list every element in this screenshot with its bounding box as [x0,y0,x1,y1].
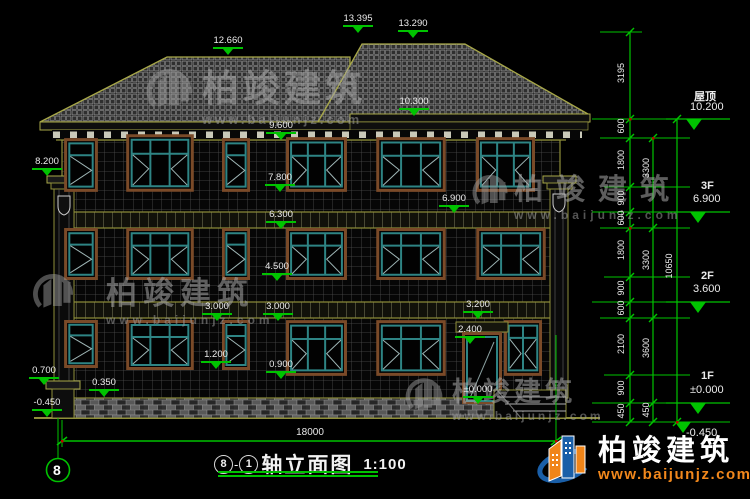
axis-bubble-8: 8 [53,462,61,478]
elevation-mark: 6.900 [432,194,476,207]
window [66,321,97,366]
watermark-left: 柏竣建筑 www.baijunjz.com [106,268,274,327]
window [66,230,97,279]
window [128,136,193,191]
elevation-mark: -0.450 [25,398,69,411]
window [66,140,97,191]
footer-logo-brand: 柏竣建筑 [598,436,750,466]
elevation-mark: 10.300 [392,97,436,110]
footer-logo-url: www.baijunjz.com [598,466,750,483]
level-label: 3F [701,180,714,192]
watermark-brand: 柏竣建筑 [202,58,366,112]
elevation-mark: 6.300 [259,210,303,223]
title-scale: 1:100 [363,456,406,473]
overall-width-dim: 18000 [285,427,335,438]
window [478,230,545,279]
dim-label: 1800 [616,140,626,180]
window [378,139,445,191]
title-axis-separator: - [234,457,238,472]
level-value: ±0.000 [690,384,724,396]
elevation-mark: 0.350 [82,378,126,391]
dim-label: 3195 [616,53,626,93]
elevation-mark: 13.290 [391,19,435,32]
watermark-brand: 柏竣建筑 [106,268,274,313]
window [378,230,445,279]
elevation-mark: 13.395 [336,14,380,27]
footer-logo: 柏竣建筑 www.baijunjz.com [536,426,750,492]
watermark-url: www.baijunjz.com [514,208,682,222]
floor-band-3f [62,212,560,228]
window [505,322,540,375]
level-label: 1F [701,370,714,382]
window [378,322,445,375]
elevation-mark: ±0.000 [456,385,500,398]
elevation-mark: 2.400 [448,325,492,338]
window [128,322,193,369]
elevation-mark: 12.660 [206,36,250,49]
dim-label: 10650 [664,246,674,286]
watermark-url: www.baijunjz.com [106,313,274,327]
level-value: 3.600 [693,283,721,295]
elevation-mark: 0.700 [22,366,66,379]
watermark-brand: 柏竣建筑 [514,166,682,208]
dim-label: 3300 [641,240,651,280]
elevation-mark: 3.000 [256,302,300,315]
dim-label: 450 [616,391,626,431]
watermark-right: 柏竣建筑 www.baijunjz.com [514,166,682,222]
dim-label: 450 [641,390,651,430]
shield-ornament [58,196,70,215]
elevation-mark: 3.000 [195,302,239,315]
elevation-mark: 8.200 [25,157,69,170]
title-underline [218,475,378,477]
elevation-mark: 7.800 [258,173,302,186]
level-label: 2F [701,270,714,282]
tower-fascia [350,114,590,122]
elevation-mark: 3.200 [456,300,500,313]
dim-label: 1800 [616,230,626,270]
elevation-drawing [0,0,750,499]
dim-label: 2100 [616,324,626,364]
elevation-mark: 0.900 [259,360,303,373]
elevation-mark: 1.200 [194,350,238,363]
dim-label: 3600 [641,328,651,368]
watermark-top: 柏竣建筑 www.baijunjz.com [202,58,366,127]
level-value: 10.200 [690,101,724,113]
level-value: 6.900 [693,193,721,205]
watermark-url: www.baijunjz.com [452,409,604,423]
dim-label: 600 [616,288,626,328]
footer-logo-icon [536,426,592,492]
elevation-mark: 4.500 [255,262,299,275]
title-underline [218,471,378,473]
elevation-mark: 9.600 [259,121,303,134]
cad-elevation-screenshot: 柏竣建筑 www.baijunjz.com 柏竣建筑 www.baijunjz.… [0,0,750,499]
dim-label: 3300 [641,148,651,188]
window [223,140,248,191]
